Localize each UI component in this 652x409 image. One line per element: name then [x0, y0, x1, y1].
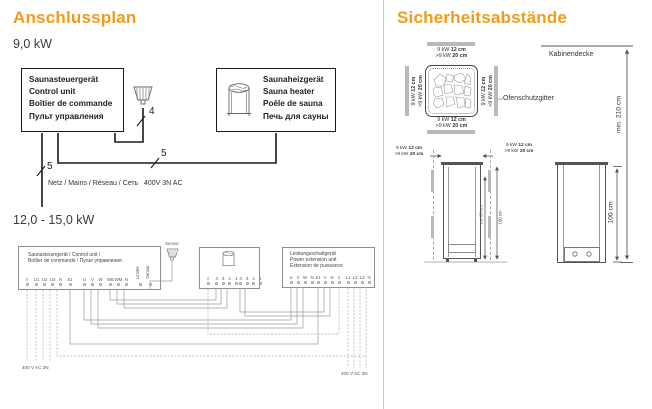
terminal: ⏚ — [24, 277, 30, 286]
terminal: N — [123, 277, 130, 286]
control-unit-box-12kw: Saunasteuergerät / Control unit / Boîtie… — [18, 246, 161, 290]
sensor-label: Sensor — [162, 241, 182, 246]
terminal: 4 — [238, 276, 244, 285]
terminal: U1 — [33, 277, 40, 286]
section-title-sicherheitsabstaende: Sicherheitsabstände — [397, 8, 567, 28]
clearance-label-left-outer: 9 kW12 cm — [411, 65, 417, 117]
heater-stone-tray — [448, 244, 476, 253]
terminal: ⏚ — [205, 276, 211, 285]
terminal: ⏚ — [336, 275, 342, 284]
terminal: U — [288, 275, 294, 284]
voltage-label-right: 400 V AC 3N — [341, 371, 368, 376]
height-ca85-label: ca. 85 cm — [479, 195, 484, 235]
terminal: L2 — [352, 275, 358, 284]
height-100-side-label: 100 cm — [608, 193, 615, 233]
control-unit-box: SaunasteuergerätControl unitBoîtier de c… — [21, 68, 124, 132]
clearance-label-right-outer: >9 kW20 cm — [488, 65, 494, 117]
terminal: U — [81, 277, 88, 286]
kabinendecke-label: Kabinendecke — [549, 51, 593, 58]
heater-label-line: Saunaheizgerät — [263, 74, 335, 86]
terminal: W — [302, 275, 308, 284]
clearance-label-right-inner: 9 kW12 cm — [481, 65, 487, 117]
voltage-label-left: 400 V AC 3N — [22, 365, 49, 370]
heater-guard-bar-left — [405, 66, 409, 116]
terminal: U3 — [49, 277, 56, 286]
terminal: U2 — [41, 277, 48, 286]
clearance-label-front-left: 9 kW12 cm >9 kW20 cm — [388, 146, 430, 158]
min-height-label: min. 210 cm — [616, 85, 623, 145]
clearance-label-top: 9 kW12 cm >9 kW20 cm — [425, 47, 478, 59]
clearance-label-front-right: 9 kW12 cm >9 kW20 cm — [498, 143, 540, 155]
control-unit-label-line: Boîtier de commande — [29, 98, 123, 110]
guard-bar-segment — [431, 170, 434, 192]
heater-label-line: Poêle de sauna — [263, 98, 335, 110]
terminal: N — [329, 275, 335, 284]
heater-stones-top-icon — [433, 73, 472, 111]
terminal: L3 — [359, 275, 365, 284]
section-title-anschlussplan: Anschlussplan — [13, 8, 137, 28]
heater-label-line: Sauna heater — [263, 86, 335, 98]
ofenschutzgitter-label: Ofenschutzgitter — [503, 95, 554, 102]
manual-page: Anschlussplan 9,0 kW SaunasteuergerätCon… — [0, 0, 652, 409]
diagram-lines — [0, 0, 652, 409]
clearance-label-bottom: 9 kW12 cm >9 kW20 cm — [425, 117, 478, 129]
wiring-12kw-dashed — [27, 288, 366, 368]
wire-label-5-heater: 5 — [161, 148, 167, 159]
terminal: V — [89, 277, 96, 286]
clearance-dashed-line — [490, 150, 491, 260]
terminal: N — [366, 275, 372, 284]
clearance-dashed-line — [433, 150, 434, 260]
terminal: 1 — [258, 276, 264, 285]
heater-guard-bar-bottom — [427, 130, 475, 134]
power-extension-box: LeistungsschaltgerätPower extension unit… — [282, 247, 375, 288]
terminal: W — [97, 277, 104, 286]
terminal: S1 — [67, 277, 73, 286]
sauna-heater-box: SaunaheizgerätSauna heaterPoêle de sauna… — [216, 68, 336, 132]
terminal: 3 — [221, 276, 227, 285]
height-100-label: 100 cm — [498, 198, 503, 238]
wire-label-4: 4 — [149, 106, 155, 117]
terminal: N — [57, 277, 64, 286]
terminal: 2 — [251, 276, 257, 285]
terminal: Sensor — [147, 262, 156, 286]
subtitle-9kw: 9,0 kW — [13, 37, 52, 51]
heater-top-view — [425, 65, 478, 117]
terminal: WB — [107, 277, 114, 286]
mains-label: Netz / Mains / Réseau / Сеть — [48, 180, 138, 187]
heater-box-12kw: ⏚ 4321 4321 — [199, 247, 260, 289]
control-unit-label-line: Control unit — [29, 86, 123, 98]
sensor-icon — [134, 87, 152, 104]
terminal: V — [322, 275, 328, 284]
guard-bar-segment — [488, 216, 491, 238]
guard-bar-segment — [431, 216, 434, 238]
mains-voltage-label: 400V 3N AC — [144, 180, 183, 187]
terminal: 4 — [214, 276, 220, 285]
terminal: WM — [115, 277, 122, 286]
heater-control-panel — [564, 247, 600, 262]
heater-label-line: Печь для сауны — [263, 111, 335, 123]
terminal: 2 — [227, 276, 233, 285]
min-height-dimension — [621, 50, 633, 263]
control-unit-label-line: Пульт управления — [29, 111, 123, 123]
heater-foot — [474, 259, 477, 262]
terminal: 3 — [245, 276, 251, 285]
heater-foot — [446, 259, 449, 262]
subtitle-12-15kw: 12,0 - 15,0 kW — [13, 213, 94, 227]
heater-guard-bar-top — [427, 42, 475, 46]
clearance-label-left-inner: >9 kW20 cm — [418, 65, 424, 117]
heater-guard-bar-right — [494, 66, 498, 116]
power-unit-label-line: Extension de puissance — [290, 264, 374, 270]
guard-bar-segment — [488, 170, 491, 192]
column-divider — [383, 0, 384, 409]
terminal: S1 — [315, 275, 321, 284]
terminal: V — [295, 275, 301, 284]
control-unit-label-line: Saunasteuergerät — [29, 74, 123, 86]
terminal: L1 — [345, 275, 351, 284]
wire-label-5-mains: 5 — [47, 161, 53, 172]
sensor-icon — [167, 249, 178, 260]
